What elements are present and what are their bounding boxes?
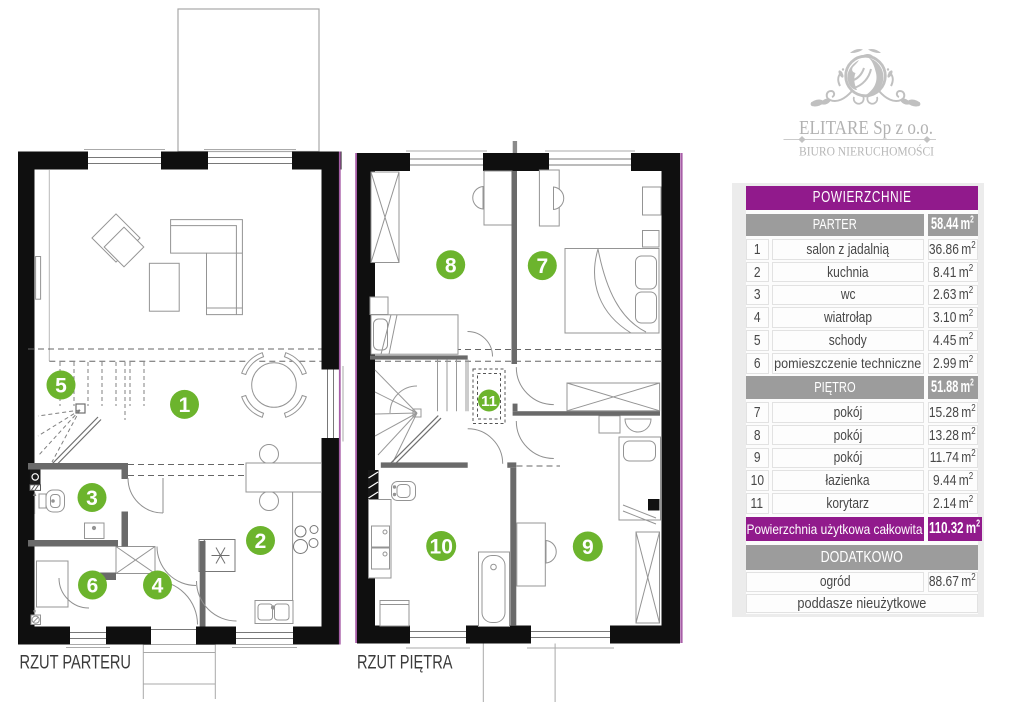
svg-text:5: 5 [55, 375, 67, 398]
svg-text:7: 7 [536, 255, 548, 278]
svg-text:1: 1 [179, 394, 191, 417]
svg-text:4: 4 [152, 575, 164, 598]
svg-text:6: 6 [87, 575, 99, 598]
svg-text:3: 3 [86, 487, 98, 510]
svg-text:BIURO NIERUCHOMOŚCI: BIURO NIERUCHOMOŚCI [799, 144, 934, 159]
svg-text:9: 9 [582, 536, 594, 559]
svg-text:8: 8 [445, 254, 457, 277]
svg-text:RZUT PARTERU: RZUT PARTERU [20, 652, 132, 674]
svg-text:10: 10 [430, 536, 453, 559]
svg-text:11: 11 [481, 393, 497, 410]
svg-text:RZUT PIĘTRA: RZUT PIĘTRA [357, 652, 453, 674]
svg-text:2: 2 [255, 530, 267, 553]
svg-text:ELITARE Sp z o.o.: ELITARE Sp z o.o. [799, 117, 933, 139]
